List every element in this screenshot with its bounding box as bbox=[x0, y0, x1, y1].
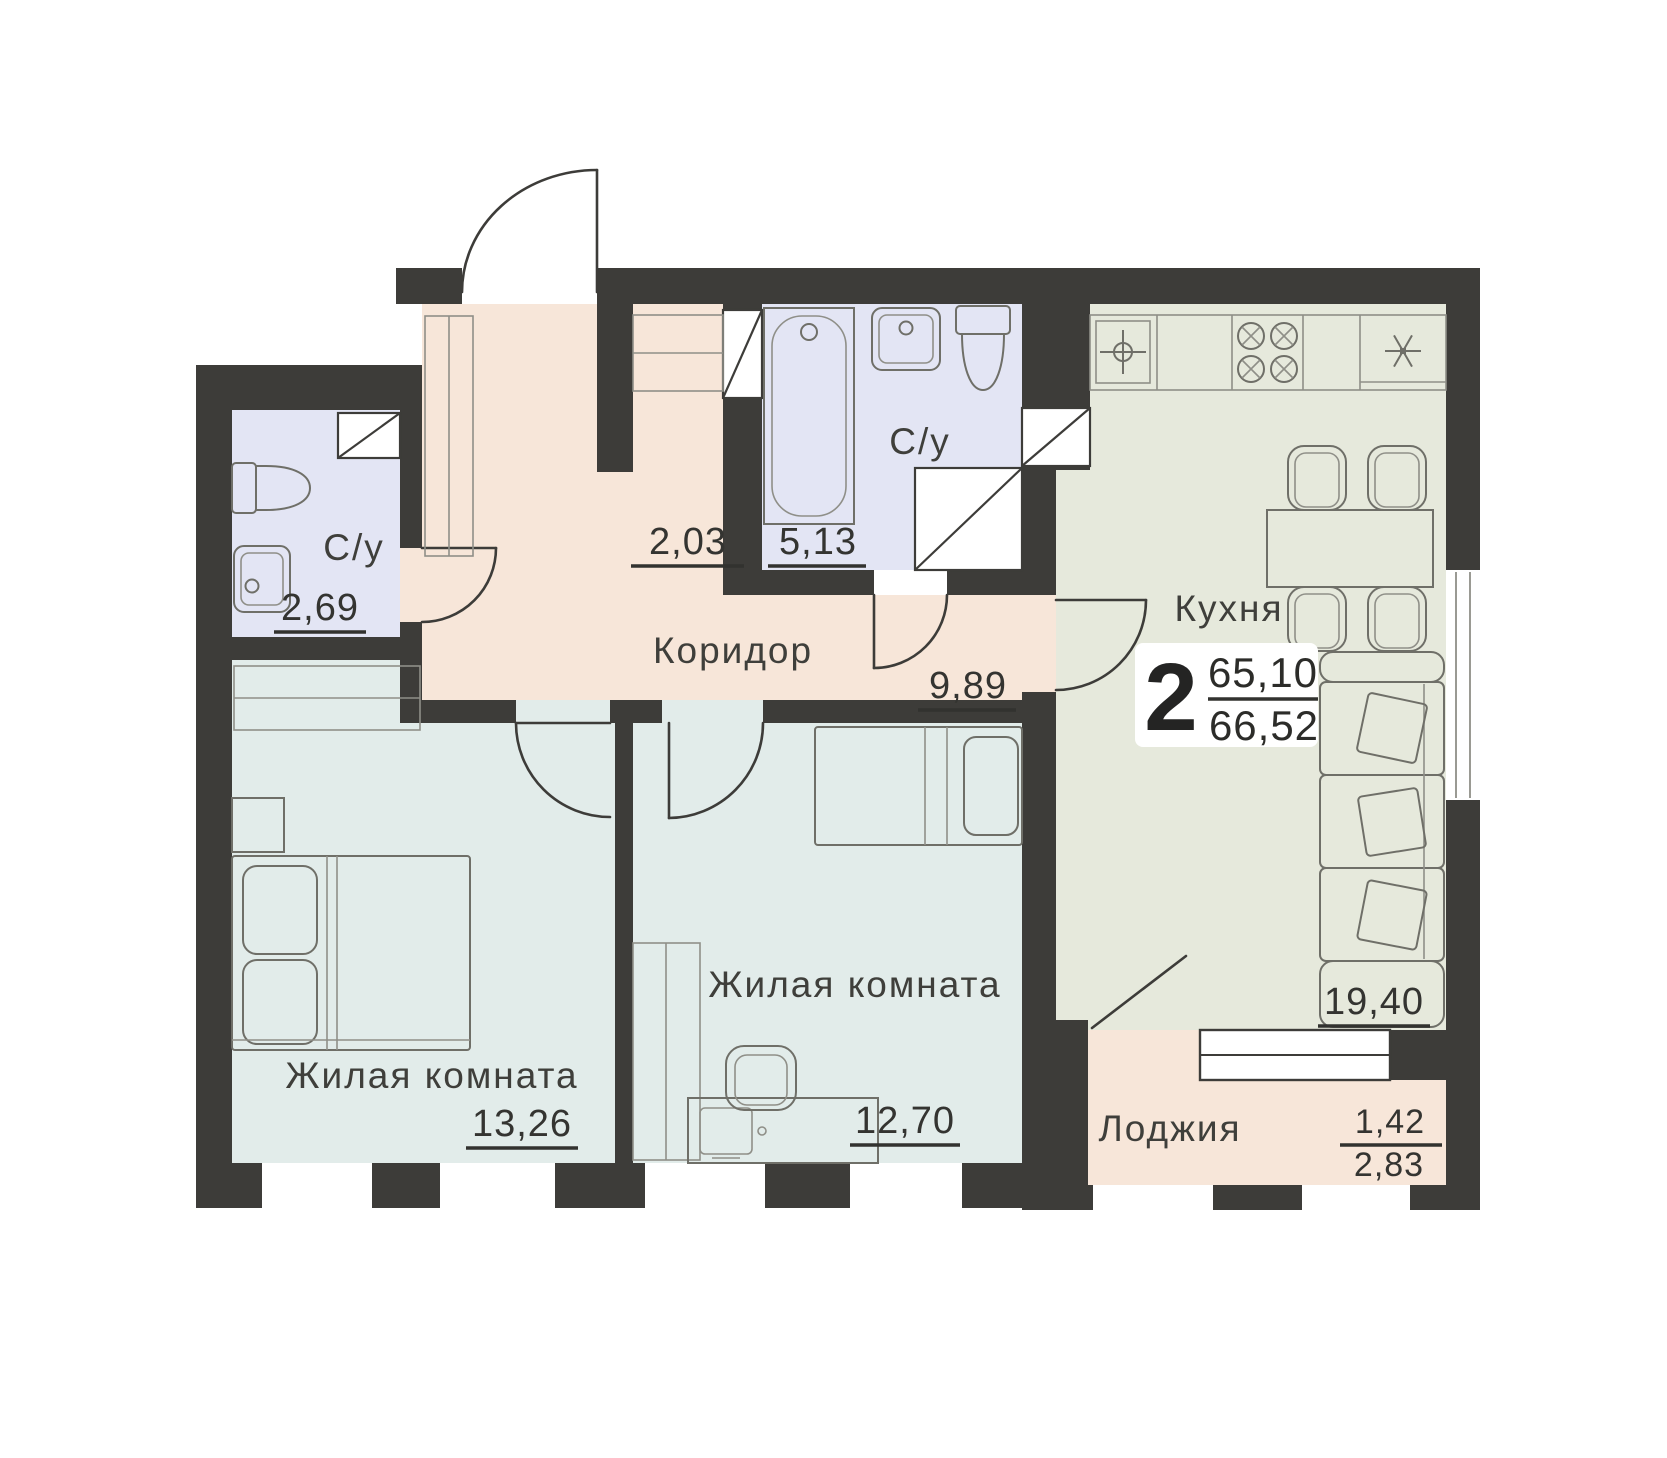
window-loggia-a bbox=[1093, 1185, 1213, 1210]
apartment-total-area: 66,52 bbox=[1209, 702, 1319, 749]
floor-plan: С/у 2,69 2,03 С/у 5,13 Коридор 9,89 Кухн… bbox=[0, 0, 1667, 1458]
bathroom-main-label: С/у bbox=[889, 421, 951, 462]
wall-corridor-bed1-left bbox=[422, 700, 516, 723]
closet-area: 2,03 bbox=[649, 521, 727, 563]
window-bed2-b bbox=[850, 1163, 962, 1208]
wall-bath-main-bottom-right bbox=[947, 570, 1022, 595]
bathroom-left-area: 2,69 bbox=[281, 587, 359, 629]
loggia-area-coefficient: 1,42 bbox=[1355, 1103, 1425, 1141]
wall-bed2-top-left bbox=[633, 700, 662, 723]
corridor-area: 9,89 bbox=[929, 665, 1007, 707]
wall-bath-left-bottom bbox=[196, 637, 422, 660]
living-room-1-area: 13,26 bbox=[472, 1103, 572, 1145]
window-bed1-b bbox=[440, 1163, 555, 1208]
bathroom-left-label: С/у bbox=[323, 527, 385, 568]
vent-closet bbox=[723, 310, 762, 398]
wall-loggia-left bbox=[1022, 1020, 1088, 1210]
living-room-2-door-patch bbox=[662, 700, 763, 723]
window-bed2-a bbox=[645, 1163, 765, 1208]
corridor-label: Коридор bbox=[653, 630, 813, 671]
apartment-info-box: 2 65,10 66,52 bbox=[1135, 643, 1319, 751]
apartment-rooms-count: 2 bbox=[1144, 644, 1197, 751]
corridor-door-patch-kitchen bbox=[1022, 595, 1056, 692]
window-bed1-a bbox=[262, 1163, 372, 1208]
wall-left bbox=[196, 365, 232, 1208]
living-room-1-label: Жилая комната bbox=[285, 1055, 578, 1096]
wall-bath-left-right-upper bbox=[400, 410, 422, 548]
living-room-2-area: 12,70 bbox=[855, 1100, 955, 1142]
window-loggia-b bbox=[1302, 1185, 1410, 1210]
vent-bath-main bbox=[915, 468, 1022, 570]
wall-bath-main-bottom-left bbox=[723, 570, 874, 595]
floor-plan-page: С/у 2,69 2,03 С/у 5,13 Коридор 9,89 Кухн… bbox=[0, 0, 1667, 1458]
wall-kitchen-loggia-chunk bbox=[1390, 1030, 1446, 1080]
wall-entry-stub bbox=[597, 268, 633, 472]
wall-corridor-bed1-right bbox=[610, 700, 633, 723]
vent-kitchen bbox=[1022, 408, 1090, 466]
entrance-opening bbox=[462, 268, 597, 304]
living-room-2-label: Жилая комната bbox=[708, 964, 1001, 1005]
bathroom-main-area: 5,13 bbox=[779, 521, 857, 563]
vent-bath-left bbox=[338, 413, 400, 458]
window-kitchen-right bbox=[1446, 570, 1480, 800]
wall-kitchen-left-lower bbox=[1022, 692, 1056, 1030]
kitchen-area: 19,40 bbox=[1324, 981, 1424, 1023]
apartment-living-area: 65,10 bbox=[1208, 649, 1318, 696]
wall-bed1-bed2 bbox=[615, 723, 633, 1163]
loggia-area: 2,83 bbox=[1354, 1146, 1424, 1184]
kitchen-label: Кухня bbox=[1174, 588, 1283, 629]
corridor-door-patch-bath1 bbox=[400, 548, 422, 622]
living-room-1-door-patch bbox=[516, 700, 610, 723]
loggia-label: Лоджия bbox=[1098, 1108, 1241, 1149]
